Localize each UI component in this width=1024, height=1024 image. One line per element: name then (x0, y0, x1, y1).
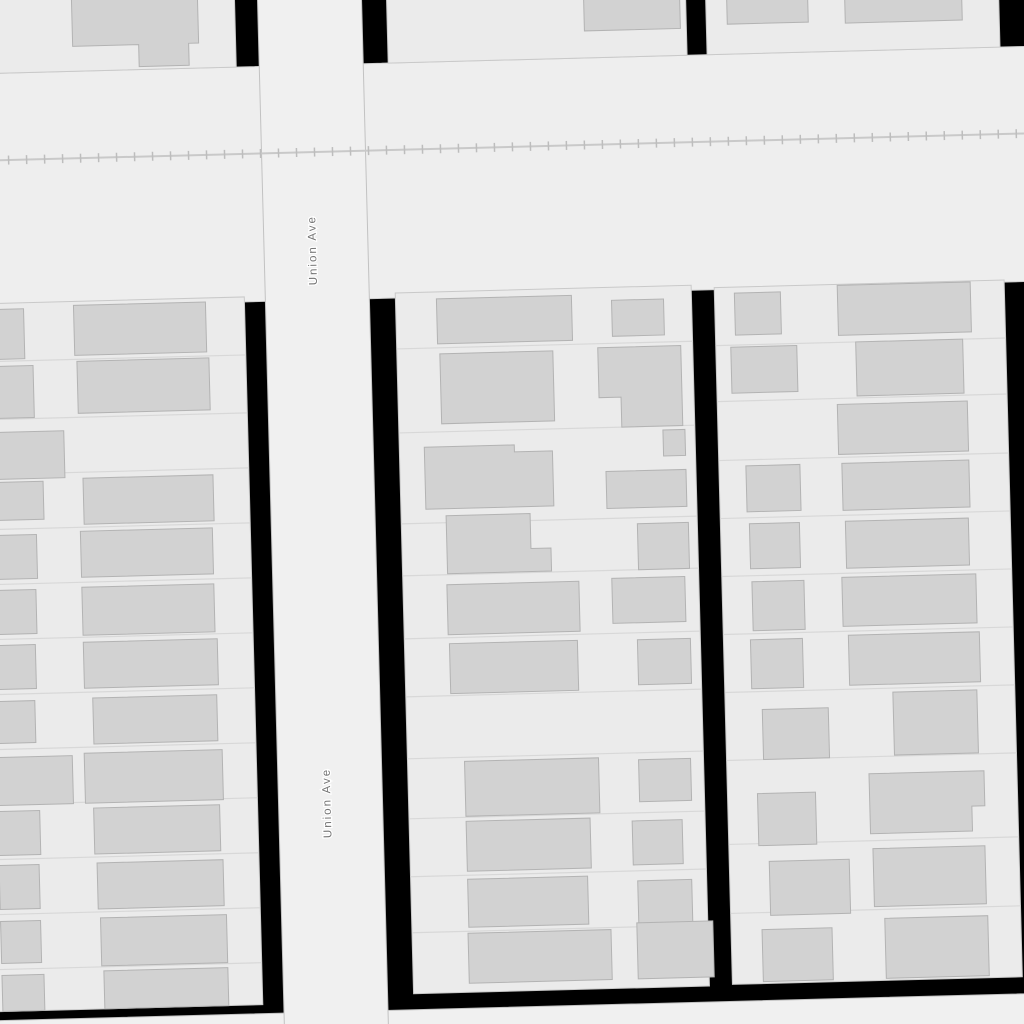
building (583, 0, 680, 31)
building (0, 481, 44, 520)
building (856, 339, 964, 396)
building (0, 756, 73, 806)
building (84, 750, 223, 804)
building (424, 444, 554, 509)
building (77, 358, 210, 413)
building (746, 464, 801, 511)
building (440, 351, 555, 424)
building (637, 522, 689, 569)
building (612, 577, 686, 624)
building (83, 475, 214, 524)
map-canvas[interactable]: Union AveUnion Ave (0, 0, 1024, 1024)
building (845, 518, 969, 568)
building (436, 295, 572, 344)
building (0, 865, 40, 910)
building (726, 0, 808, 24)
building (0, 810, 41, 855)
building (752, 580, 805, 630)
building (468, 930, 612, 984)
building (466, 818, 591, 871)
building (873, 846, 986, 907)
building (83, 639, 218, 688)
building (769, 859, 850, 915)
building (449, 640, 578, 693)
building (885, 916, 990, 979)
building (842, 574, 977, 626)
building (447, 581, 580, 634)
building (0, 365, 34, 418)
building (750, 638, 803, 688)
building (0, 309, 25, 360)
building (606, 469, 687, 508)
building (80, 528, 213, 577)
building (637, 638, 691, 684)
building (465, 758, 600, 816)
road-corridor (0, 46, 1024, 310)
building (893, 690, 979, 755)
building (104, 968, 229, 1009)
building (0, 431, 65, 480)
building (1, 920, 42, 963)
building (73, 302, 206, 355)
building (844, 0, 962, 23)
building (734, 292, 781, 335)
street-label-union-ave: Union Ave (306, 215, 320, 286)
building (0, 589, 37, 634)
building (94, 805, 221, 854)
map-content: Union AveUnion Ave (0, 0, 1024, 1024)
building (639, 758, 692, 801)
building (97, 860, 224, 909)
building (468, 876, 589, 927)
building (0, 701, 36, 744)
building (837, 401, 968, 454)
map-svg[interactable]: Union AveUnion Ave (0, 0, 1024, 1024)
building (842, 460, 970, 510)
building (0, 534, 38, 579)
building (757, 792, 816, 846)
building (762, 928, 833, 982)
building (749, 522, 800, 568)
building (0, 645, 36, 690)
building (93, 695, 218, 744)
street-label-union-ave: Union Ave (321, 768, 335, 839)
building (762, 708, 829, 760)
building (848, 632, 980, 685)
building (638, 879, 693, 924)
building (663, 429, 686, 456)
building (632, 820, 683, 865)
building (637, 921, 714, 979)
building (731, 345, 798, 393)
building (611, 299, 664, 336)
building (2, 974, 45, 1011)
building (837, 282, 971, 335)
building (869, 771, 986, 834)
building (100, 915, 227, 966)
building (82, 584, 215, 635)
